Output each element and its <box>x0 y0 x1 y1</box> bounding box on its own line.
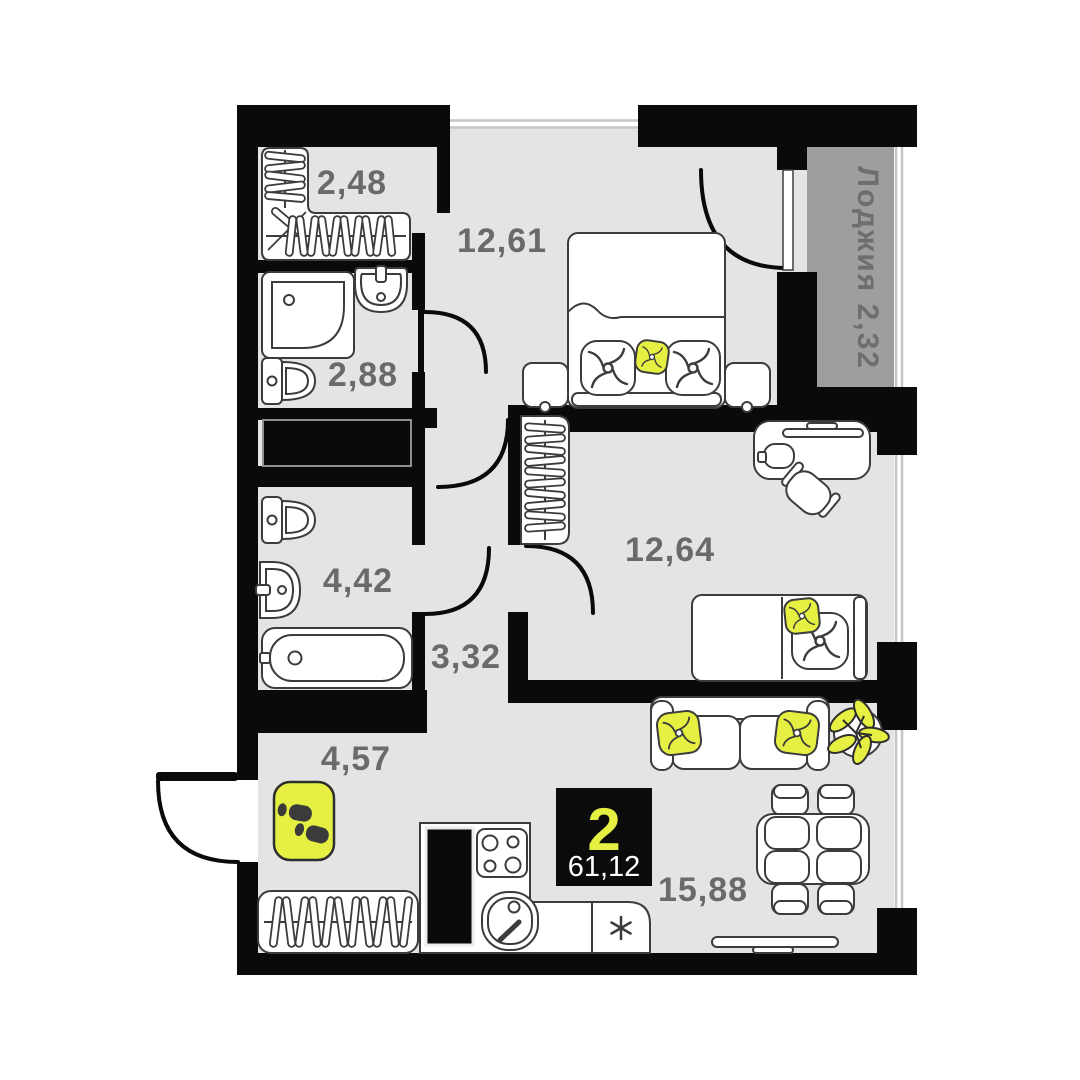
nightstand-left <box>523 363 568 412</box>
nightstand-right <box>725 363 770 412</box>
sofa <box>651 697 829 770</box>
room-label-entry: 4,57 <box>321 740 391 778</box>
badge-total-area: 61,12 <box>568 851 641 883</box>
room-label-hallway: 3,32 <box>431 638 501 676</box>
wall-sink <box>355 266 407 312</box>
floor-plan-canvas: 2,48 12,61 2,88 4,42 3,32 12,64 4,57 15,… <box>0 0 1080 1080</box>
room-label-bathroom-shower: 2,88 <box>328 356 398 394</box>
shower-tray <box>262 272 354 358</box>
single-bed <box>692 595 867 681</box>
loggia-label: Лоджия 2,32 <box>851 166 884 370</box>
room-label-bedroom: 12,61 <box>457 222 547 260</box>
wall-sink-2 <box>256 562 300 618</box>
summary-badge: 2 61,12 <box>556 788 652 886</box>
room-label-living: 15,88 <box>658 871 748 909</box>
floor-plan: 2,48 12,61 2,88 4,42 3,32 12,64 4,57 15,… <box>0 0 1080 1080</box>
loggia-door-leaf <box>783 170 793 270</box>
kitchen-sink <box>482 892 538 950</box>
bathtub <box>260 628 412 688</box>
ventilation-shaft <box>263 420 411 466</box>
double-bed <box>568 233 725 408</box>
fridge <box>426 828 473 945</box>
shower-door-leaf <box>418 310 424 372</box>
doormat <box>274 782 334 860</box>
room-label-bathroom: 4,42 <box>323 562 393 600</box>
stove <box>477 829 527 877</box>
desk <box>754 421 870 479</box>
entrance-door-arc <box>158 781 238 862</box>
wardrobe-2 <box>521 416 569 544</box>
entrance-door-leaf <box>156 772 238 781</box>
entry-wardrobe <box>258 891 418 953</box>
room-label-bedroom-2: 12,64 <box>625 531 715 569</box>
room-label-wardrobe: 2,48 <box>317 164 387 202</box>
